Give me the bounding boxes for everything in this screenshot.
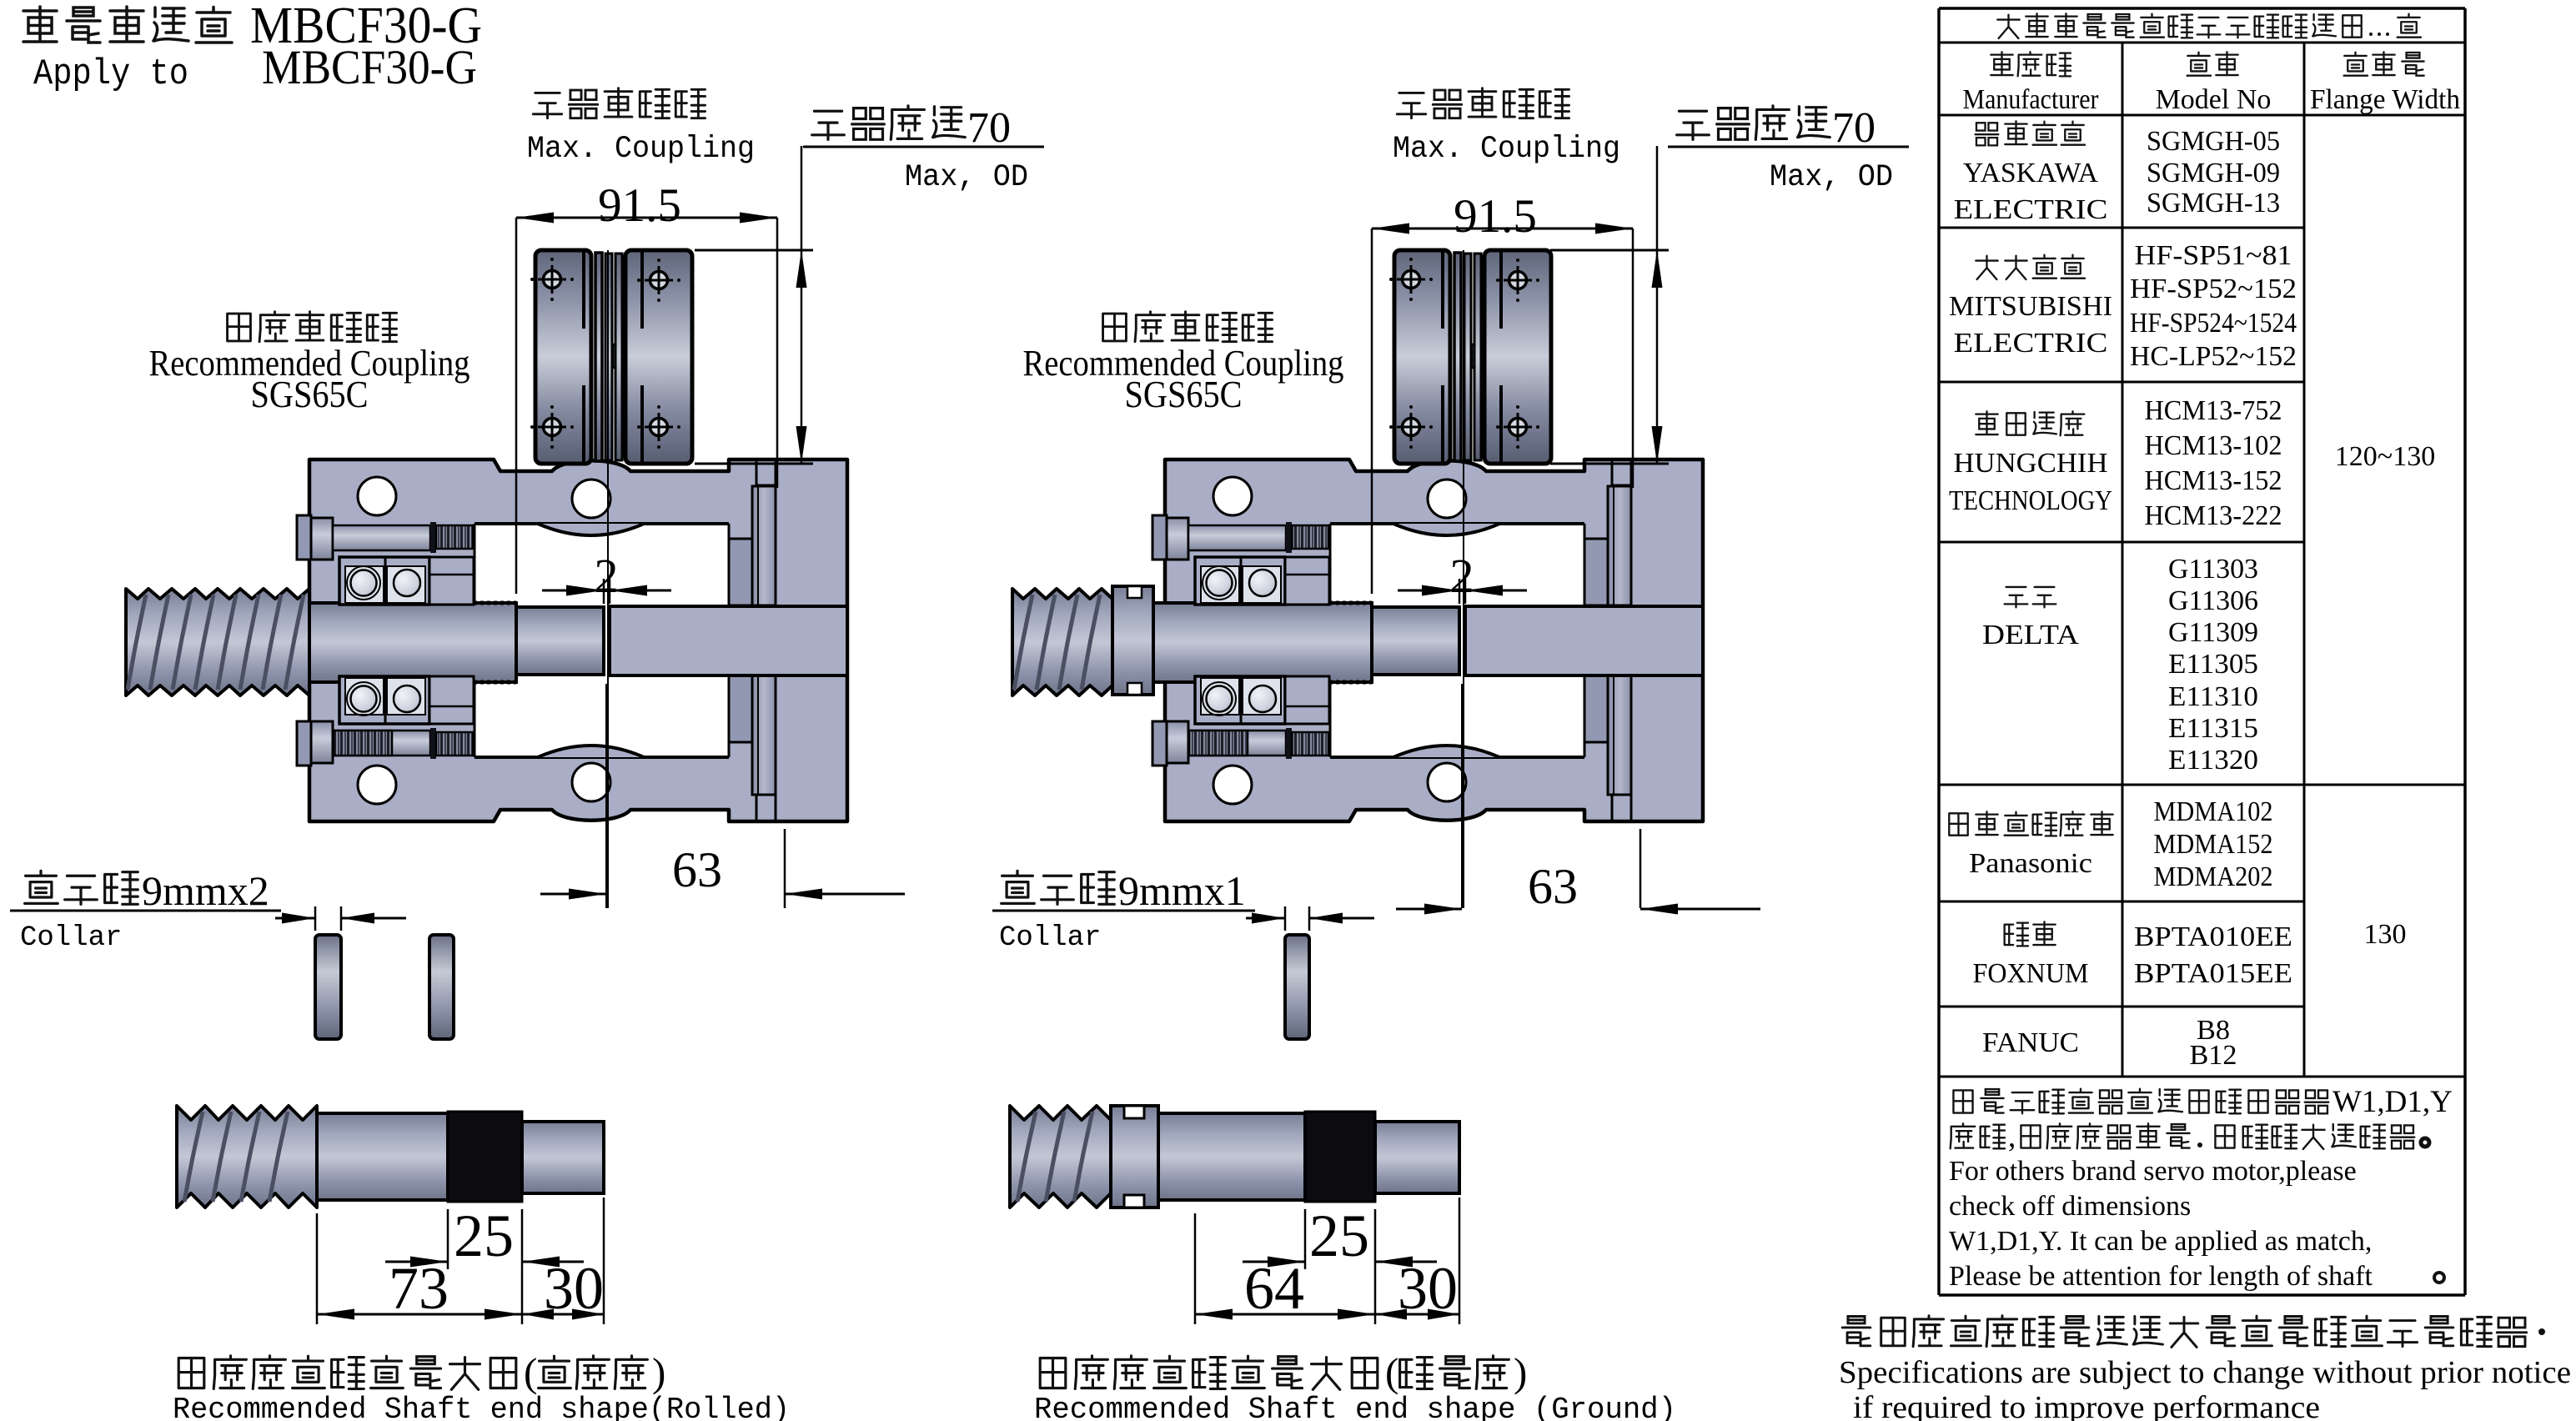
svg-text:DELTA: DELTA	[1982, 620, 2079, 650]
svg-text:E11315: E11315	[2168, 713, 2258, 744]
svg-text:): )	[652, 1349, 665, 1395]
svg-text:63: 63	[672, 842, 722, 897]
svg-text:if required to improve perform: if required to improve performance	[1853, 1390, 2320, 1421]
svg-text:): )	[1514, 1349, 1527, 1395]
svg-text:HUNGCHIH: HUNGCHIH	[1954, 448, 2108, 479]
svg-text:HCM13-222: HCM13-222	[2145, 500, 2282, 531]
svg-text:Recommended Shaft end shape (G: Recommended Shaft end shape (Ground)	[1034, 1393, 1676, 1421]
svg-text:70: 70	[1832, 104, 1876, 152]
svg-text:Flange Width: Flange Width	[2310, 84, 2460, 115]
svg-text:MITSUBISHI: MITSUBISHI	[1949, 291, 2112, 322]
svg-text:E11305: E11305	[2168, 649, 2258, 680]
svg-text:ELECTRIC: ELECTRIC	[1954, 328, 2108, 359]
svg-text:(: (	[524, 1349, 537, 1395]
svg-text:W1,D1,Y: W1,D1,Y	[2332, 1085, 2453, 1119]
svg-text:MDMA202: MDMA202	[2154, 861, 2273, 892]
svg-text:Apply to: Apply to	[33, 53, 188, 95]
svg-text:G11309: G11309	[2168, 617, 2258, 648]
svg-text:Max, OD: Max, OD	[905, 160, 1028, 195]
svg-text:Please be attention for length: Please be attention for length of shaft	[1949, 1261, 2373, 1292]
svg-text:MDMA102: MDMA102	[2154, 796, 2273, 827]
svg-text:check off dimensions: check off dimensions	[1949, 1191, 2191, 1222]
svg-text:(: (	[1385, 1349, 1398, 1395]
svg-text:SGS65C: SGS65C	[1125, 374, 1243, 415]
svg-text:E11310: E11310	[2168, 681, 2258, 712]
svg-text:,: ,	[2008, 1120, 2016, 1154]
svg-text:Max. Coupling: Max. Coupling	[527, 132, 755, 167]
svg-text:MDMA152: MDMA152	[2154, 829, 2273, 860]
svg-text:9mmx1: 9mmx1	[1118, 867, 1246, 914]
svg-text:130: 130	[2364, 919, 2407, 950]
svg-text:HC-LP52~152: HC-LP52~152	[2130, 341, 2297, 372]
svg-text:70: 70	[967, 104, 1011, 152]
svg-text:SGMGH-09: SGMGH-09	[2147, 158, 2280, 188]
svg-text:YASKAWA: YASKAWA	[1963, 158, 2098, 188]
svg-text:SGMGH-13: SGMGH-13	[2147, 188, 2280, 218]
svg-text:HCM13-152: HCM13-152	[2145, 465, 2282, 496]
svg-text:25: 25	[454, 1203, 514, 1269]
svg-text:Collar: Collar	[999, 922, 1101, 954]
svg-text:Panasonic: Panasonic	[1969, 848, 2092, 879]
svg-text:9mmx2: 9mmx2	[142, 867, 269, 914]
svg-text:HF-SP52~152: HF-SP52~152	[2130, 274, 2297, 304]
svg-text:Max. Coupling: Max. Coupling	[1393, 132, 1620, 167]
svg-text:91.5: 91.5	[598, 179, 681, 232]
svg-text:HCM13-752: HCM13-752	[2145, 395, 2282, 426]
svg-text:E11320: E11320	[2168, 745, 2258, 776]
svg-text:HCM13-102: HCM13-102	[2145, 430, 2282, 461]
svg-text:Max, OD: Max, OD	[1770, 160, 1893, 195]
svg-text:2: 2	[595, 549, 619, 603]
svg-text:73: 73	[389, 1255, 449, 1322]
svg-text:64: 64	[1244, 1255, 1304, 1322]
svg-text:2: 2	[1450, 549, 1474, 603]
svg-text:FOXNUM: FOXNUM	[1973, 958, 2089, 989]
svg-text:G11303: G11303	[2168, 554, 2258, 585]
svg-text:BPTA010EE: BPTA010EE	[2134, 921, 2292, 952]
svg-text:BPTA015EE: BPTA015EE	[2134, 958, 2292, 989]
svg-text:ELECTRIC: ELECTRIC	[1954, 194, 2108, 225]
svg-text:B12: B12	[2190, 1040, 2237, 1071]
svg-text:For others brand servo motor,p: For others brand servo motor,please	[1949, 1156, 2357, 1187]
svg-text:91.5: 91.5	[1454, 190, 1537, 243]
svg-text:SGMGH-05: SGMGH-05	[2147, 126, 2280, 157]
svg-text:63: 63	[1528, 859, 1578, 914]
svg-text:Recommended Shaft end shape(Ro: Recommended Shaft end shape(Rolled)	[173, 1393, 790, 1421]
svg-text:SGS65C: SGS65C	[251, 374, 369, 415]
svg-text:Model No: Model No	[2156, 84, 2272, 115]
svg-text:Manufacturer: Manufacturer	[1963, 84, 2100, 115]
svg-text:W1,D1,Y. It can be applied as: W1,D1,Y. It can be applied as match,	[1949, 1226, 2372, 1257]
svg-text:25: 25	[1309, 1203, 1369, 1269]
svg-text:TECHNOLOGY: TECHNOLOGY	[1949, 485, 2112, 516]
svg-text:120~130: 120~130	[2335, 441, 2435, 472]
svg-text:MBCF30-G: MBCF30-G	[262, 40, 477, 94]
svg-text:HF-SP51~81: HF-SP51~81	[2135, 240, 2292, 271]
svg-text:Collar: Collar	[20, 922, 122, 954]
svg-text:G11306: G11306	[2168, 585, 2258, 616]
svg-text:FANUC: FANUC	[1982, 1027, 2079, 1058]
svg-text:HF-SP524~1524: HF-SP524~1524	[2130, 308, 2297, 339]
svg-text:Specifications are subject to: Specifications are subject to change wit…	[1839, 1355, 2571, 1390]
